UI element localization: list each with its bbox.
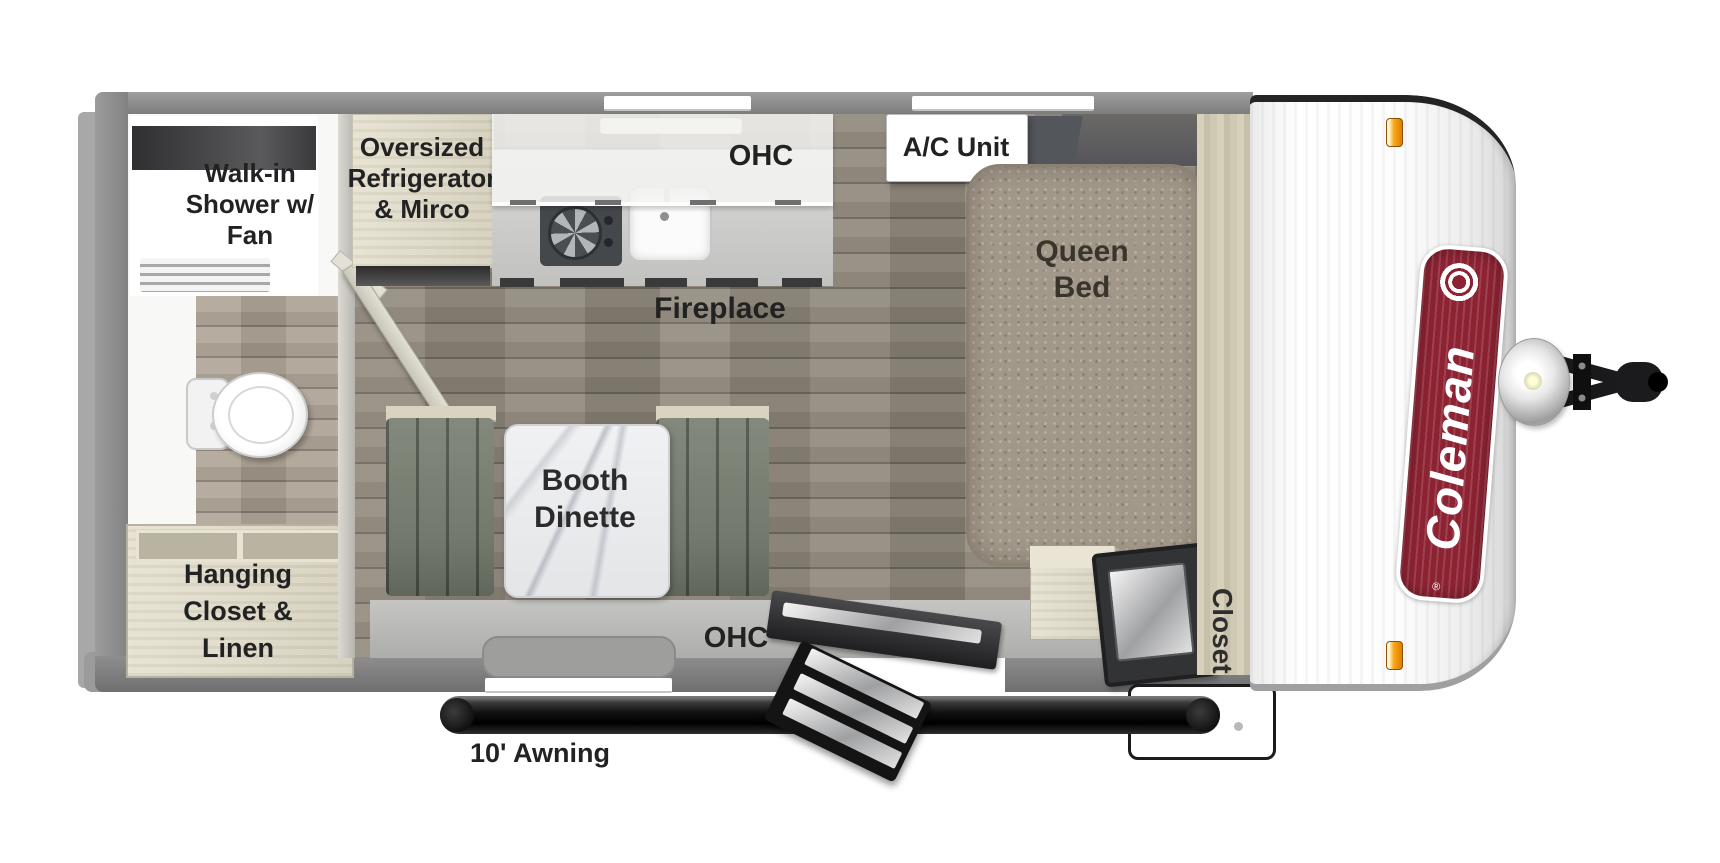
cabinet-bracket-2	[595, 200, 621, 205]
awning-bar-endcap-left	[440, 698, 474, 732]
ac-unit-label: A/C Unit	[886, 132, 1026, 163]
refrigerator-label-line1: Oversized	[342, 132, 502, 163]
stove-burner	[548, 206, 602, 260]
awning-label: 10' Awning	[450, 738, 630, 769]
toilet-seat-ring	[228, 386, 294, 444]
coleman-wordmark: Coleman	[1411, 307, 1489, 591]
refrigerator-label-line3: & Mirco	[342, 194, 502, 225]
cabinet-toe-kick-2	[560, 278, 624, 287]
stove-knob-1	[604, 216, 613, 225]
dinette-bench-right	[656, 418, 769, 596]
refrigerator-base-shadow	[356, 266, 490, 286]
hanging-closet-label-line1: Hanging	[138, 556, 338, 593]
cabinet-toe-kick-5	[782, 278, 822, 287]
queen-bed-label: Queen Bed	[966, 234, 1198, 306]
sink-drain	[660, 212, 669, 221]
bottom-window	[485, 678, 672, 693]
awning-bar-endcap-right	[1186, 698, 1220, 732]
cabinet-bracket-3	[690, 200, 716, 205]
shower-label-line1: Walk-in	[150, 158, 350, 189]
shower-door-tracks	[140, 258, 270, 292]
booth-dinette-label-line1: Booth	[504, 462, 666, 499]
cabinet-bracket-4	[775, 200, 801, 205]
dinette-bench-left	[386, 418, 494, 596]
queen-bed	[966, 164, 1204, 566]
bracket-rivet-2	[1234, 722, 1243, 731]
coleman-registered-mark: ®	[1429, 581, 1444, 594]
booth-dinette-label: Booth Dinette	[504, 462, 666, 536]
dinette-table-base	[482, 636, 676, 678]
propane-tank-valve	[1524, 372, 1542, 390]
top-window-1	[604, 96, 751, 111]
closet-label: Closet	[1202, 576, 1238, 686]
cabinet-bracket-1	[510, 200, 536, 205]
cabinet-toe-kick-3	[645, 278, 687, 287]
microwave-door	[1107, 562, 1194, 662]
cabinet-toe-kick-1	[500, 278, 534, 287]
hanging-closet-label: Hanging Closet & Linen	[138, 556, 338, 667]
overbed-shelf	[1062, 114, 1197, 166]
marker-light-top	[1386, 118, 1403, 147]
hanging-closet-label-line2: Closet &	[138, 593, 338, 630]
hanging-closet-label-line3: Linen	[138, 630, 338, 667]
refrigerator-label: Oversized Refrigerator & Mirco	[342, 132, 502, 225]
queen-bed-label-line1: Queen	[966, 234, 1198, 270]
refrigerator-label-line2: Refrigerator	[342, 163, 502, 194]
shower-label-line2: Shower w/	[150, 189, 350, 220]
top-window-2	[912, 96, 1094, 111]
marker-light-bottom	[1386, 641, 1403, 670]
fireplace-label: Fireplace	[620, 292, 820, 327]
coleman-lantern-icon	[1438, 261, 1481, 304]
floorplan-canvas: Walk-in Shower w/ Fan Hanging Closet & L…	[0, 0, 1720, 863]
shower-label-line3: Fan	[150, 220, 350, 251]
kitchen-ohc-label: OHC	[711, 140, 811, 174]
trailer-wall-left	[95, 92, 128, 692]
shower-label: Walk-in Shower w/ Fan	[150, 158, 350, 251]
cabinet-toe-kick-4	[706, 278, 758, 287]
queen-bed-label-line2: Bed	[966, 270, 1198, 306]
stove-knob-2	[604, 238, 613, 247]
booth-dinette-label-line2: Dinette	[504, 499, 666, 536]
